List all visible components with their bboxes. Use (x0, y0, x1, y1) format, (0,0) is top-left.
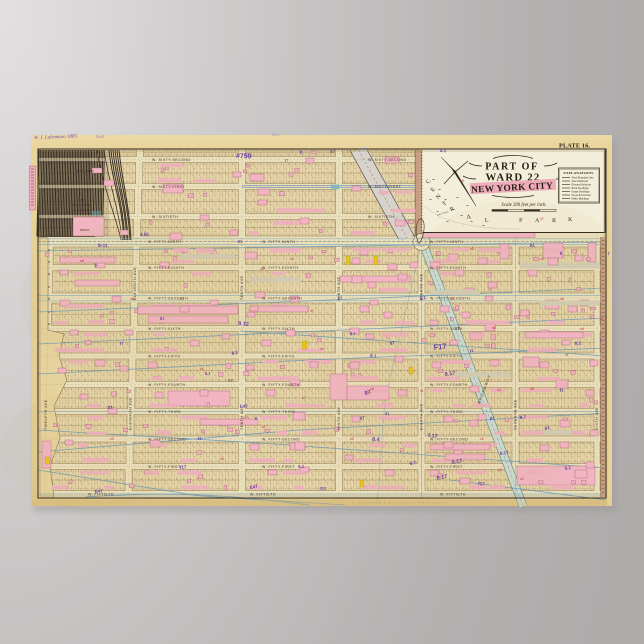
svg-text:W. SIXTY-SECOND: W. SIXTY-SECOND (368, 158, 407, 162)
svg-text:8.7: 8.7 (520, 414, 527, 420)
svg-text:x5: x5 (460, 179, 464, 183)
svg-text:8-11: 8-11 (98, 243, 108, 249)
svg-text:x8: x8 (130, 297, 134, 301)
svg-text:8.1: 8.1 (440, 148, 447, 153)
svg-text:x5: x5 (370, 387, 374, 391)
svg-text:17: 17 (284, 158, 289, 163)
svg-text:EXPLANATIONS.: EXPLANATIONS. (563, 171, 594, 175)
svg-text:W. FIFTY-THIRD: W. FIFTY-THIRD (262, 410, 295, 414)
svg-text:x4: x4 (290, 257, 294, 261)
svg-text:x7: x7 (310, 309, 314, 313)
svg-text:W. SIXTY-FIRST: W. SIXTY-FIRST (368, 185, 401, 189)
svg-text:PLATE 16.: PLATE 16. (559, 143, 591, 150)
svg-text:E47: E47 (95, 488, 104, 494)
svg-text:81: 81 (108, 405, 114, 410)
svg-text:x4: x4 (180, 297, 184, 301)
svg-text:Public Buildings: Public Buildings (572, 198, 589, 201)
svg-text:4.55: 4.55 (140, 232, 149, 237)
svg-text:THE: THE (78, 198, 85, 202)
svg-text:x7: x7 (302, 396, 306, 400)
svg-text:x8: x8 (80, 259, 84, 263)
svg-text:N.Y.C. & H.R.: N.Y.C. & H.R. (72, 203, 92, 207)
svg-text:x8: x8 (560, 297, 564, 301)
svg-text:F17: F17 (433, 341, 447, 352)
svg-text:x1: x1 (565, 353, 569, 357)
svg-text:x3: x3 (220, 457, 224, 461)
svg-text:W. FIFTY-FIRST: W. FIFTY-FIRST (262, 465, 295, 469)
svg-text:x2: x2 (520, 477, 524, 481)
svg-text:W. FIFTY-FIFTH: W. FIFTY-FIFTH (262, 354, 295, 358)
svg-text:8.4: 8.4 (372, 437, 381, 443)
svg-text:x7: x7 (262, 425, 266, 429)
svg-text:x1: x1 (470, 247, 474, 251)
svg-text:W. FIFTY-SECOND: W. FIFTY-SECOND (262, 437, 300, 441)
svg-text:No 4: No 4 (95, 134, 104, 139)
svg-text:8.2: 8.2 (575, 340, 582, 346)
svg-text:4.1: 4.1 (298, 464, 305, 469)
svg-text:x7: x7 (540, 217, 544, 221)
svg-text:W. SIXTIETH: W. SIXTIETH (368, 215, 394, 219)
svg-text:8.1: 8.1 (370, 353, 377, 359)
svg-text:Keil: Keil (271, 132, 280, 137)
svg-text:x2: x2 (540, 257, 544, 261)
svg-text:W. FIFTY-FOURTH: W. FIFTY-FOURTH (148, 383, 186, 387)
svg-text:W. FIFTY-NINTH: W. FIFTY-NINTH (262, 240, 295, 244)
svg-text:x1: x1 (600, 317, 604, 321)
svg-text:W. SIXTIETH: W. SIXTIETH (152, 215, 178, 219)
svg-text:x8: x8 (530, 387, 534, 391)
svg-text:x2: x2 (350, 437, 354, 441)
svg-text:x3: x3 (498, 468, 502, 472)
svg-text:TENTH AVE: TENTH AVE (240, 405, 244, 430)
svg-text:x8: x8 (580, 327, 584, 331)
svg-text:x3: x3 (110, 437, 114, 441)
svg-text:x1: x1 (200, 367, 204, 371)
svg-text:x7: x7 (450, 297, 454, 301)
svg-text:f17: f17 (478, 481, 485, 487)
svg-text:W. FIFTIETH: W. FIFTIETH (250, 492, 276, 496)
svg-text:8.12: 8.12 (238, 321, 249, 328)
svg-text:x8: x8 (492, 326, 496, 330)
svg-text:W. SIXTY-SECOND: W. SIXTY-SECOND (152, 158, 191, 162)
svg-text:81: 81 (490, 416, 496, 421)
svg-text:N.Y.C. ROW: N.Y.C. ROW (76, 169, 95, 173)
svg-text:R.R. PARK: R.R. PARK (74, 208, 90, 212)
svg-text:f.17: f.17 (428, 433, 438, 440)
svg-text:x1: x1 (420, 389, 424, 393)
svg-text:W. FIFTY-FOURTH: W. FIFTY-FOURTH (262, 383, 300, 387)
svg-text:f.47: f.47 (240, 403, 249, 409)
svg-text:#759: #759 (236, 153, 252, 160)
svg-text:W. SIXTY-FIRST: W. SIXTY-FIRST (152, 185, 185, 189)
svg-text:fl: fl (300, 150, 303, 155)
svg-text:f17: f17 (179, 464, 187, 470)
svg-text:x4: x4 (497, 388, 501, 392)
svg-text:f17: f17 (320, 486, 327, 491)
svg-text:x2: x2 (480, 437, 484, 441)
svg-text:x4: x4 (320, 347, 324, 351)
svg-text:ST: ST (228, 378, 234, 383)
svg-text:x3: x3 (260, 267, 264, 271)
